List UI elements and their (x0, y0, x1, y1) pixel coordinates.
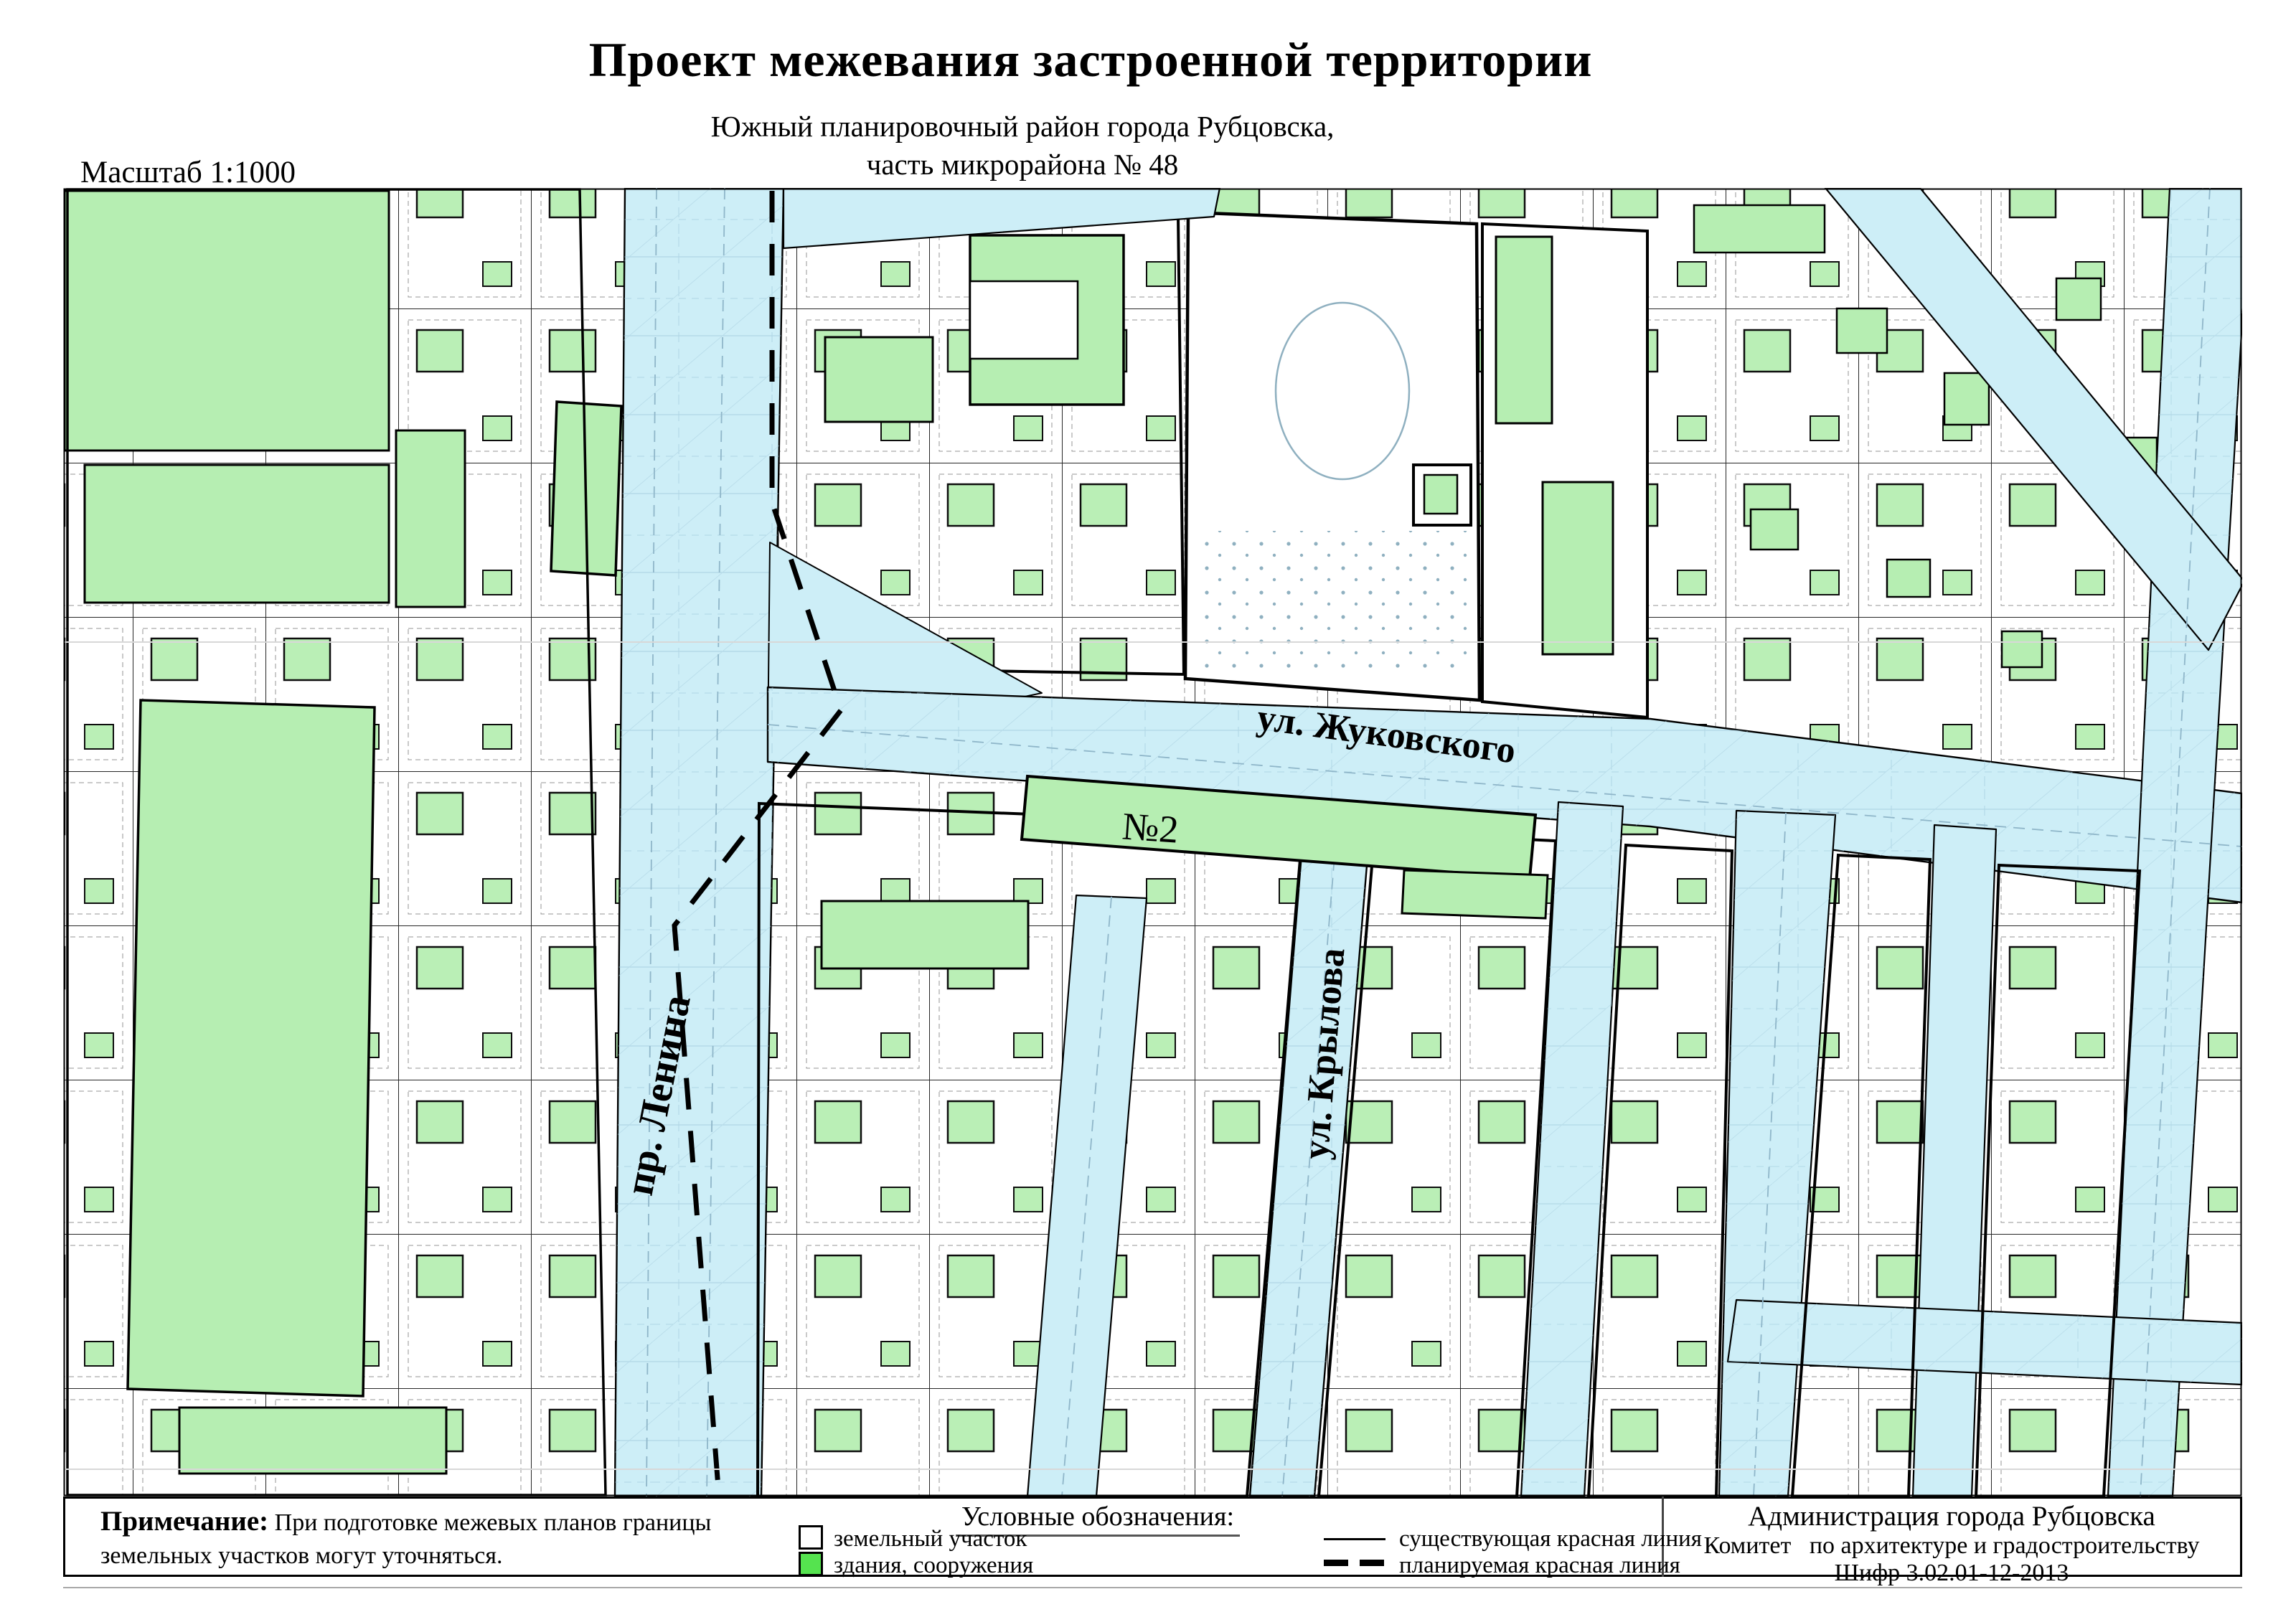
note-block: Примечание: При подготовке межевых плано… (100, 1505, 818, 1573)
legend-parcel-swatch (799, 1525, 823, 1550)
legend-item-building: здания, сооружения (834, 1553, 1033, 1578)
plan-sheet: Проект межевания застроенной территории … (0, 0, 2296, 1612)
building-no2-label: №2 (1121, 804, 1180, 851)
legend-building-swatch (799, 1552, 823, 1576)
school-building (1496, 237, 1552, 423)
page-title: Проект межевания застроенной территории (0, 32, 2181, 88)
org-line-1: Администрация города Рубцовска (1672, 1501, 2231, 1532)
scale-label: Масштаб 1:1000 (80, 155, 296, 190)
legend-item-existing-line: существующая красная линия (1399, 1527, 1702, 1551)
green-building (179, 1408, 446, 1474)
green-building (825, 337, 933, 422)
green-block (128, 700, 375, 1396)
green-building-clinic (822, 901, 1028, 968)
green-building (396, 430, 465, 607)
page-subtitle: Южный планировочный район города Рубцовс… (0, 108, 2045, 184)
note-label: Примечание: (100, 1506, 268, 1537)
green-building (1424, 475, 1457, 514)
green-block (85, 465, 389, 603)
legend-item-parcel: земельный участок (834, 1527, 1027, 1551)
green-building-3nzh (1402, 870, 1548, 918)
subtitle-line-1: Южный планировочный район города Рубцовс… (0, 108, 2045, 146)
org-line-2: Комитет по архитектуре и градостроительс… (1672, 1532, 2231, 1560)
green-building (1543, 482, 1613, 654)
sheet-bottom-edge (63, 1587, 2242, 1588)
map: пр. Ленина ул. Жуковского ул. Крылова №2 (63, 188, 2242, 1496)
park-area (65, 191, 389, 451)
subtitle-line-2: часть микрорайона № 48 (0, 146, 2045, 184)
note-text-line-1: При подготовке межевых планов границы (275, 1509, 712, 1536)
org-line-3: Шифр 3.02.01-12-2013 (1672, 1560, 2231, 1587)
legend-planned-line-swatch (1324, 1560, 1385, 1566)
legend-existing-line-swatch (1324, 1538, 1385, 1540)
note-text-line-2: земельных участков могут уточняться. (100, 1542, 503, 1569)
org-block: Администрация города Рубцовска Комитет п… (1672, 1501, 2231, 1587)
legend-item-planned-line: планируемая красная линия (1399, 1553, 1680, 1578)
trees-area (1198, 531, 1471, 671)
